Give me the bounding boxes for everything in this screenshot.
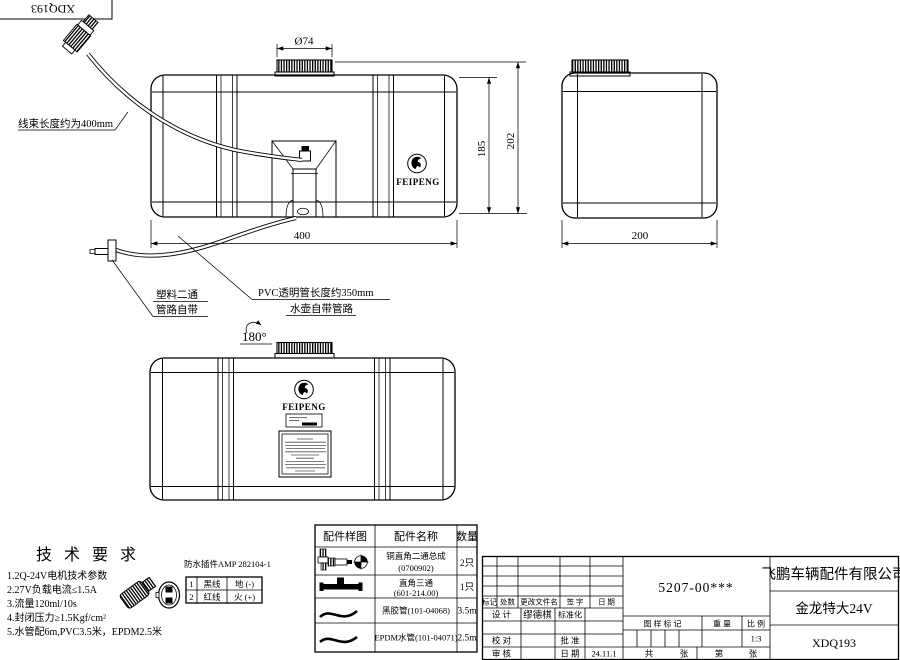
- approve-label: 批 准: [560, 636, 580, 646]
- dim-height-202: 202: [335, 62, 527, 214]
- rotated-band-left: [218, 359, 234, 500]
- pvc-hose-note: PVC透明管长度约350mm 水壶自带管路: [178, 236, 390, 316]
- tech-item-4: 4.封闭压力≥1.5Kgf/cm²: [7, 611, 106, 624]
- harness-note-text: 线束长度约为400mm: [18, 117, 113, 130]
- rotated-view: 180° FEIPENG: [150, 322, 455, 500]
- barcode-label: [286, 414, 322, 427]
- part-number: 5207-00***: [658, 580, 733, 595]
- plastic-note-line1: 塑料二通: [156, 288, 198, 301]
- feipeng-logo-front: FEIPENG: [396, 154, 440, 187]
- dim-height-total-text: 202: [505, 133, 517, 150]
- date-label: 日 期: [560, 649, 579, 659]
- weight-label: 重 量: [713, 619, 731, 629]
- bird-icon: [411, 157, 421, 169]
- drawing-sheet: XDQ193: [0, 0, 900, 660]
- tech-item-5: 5.水管配6m,PVC3.5米，EPDM2.5米: [7, 625, 162, 638]
- part2-name: 直角三通: [399, 578, 434, 588]
- part1-code: (0700902): [398, 563, 434, 573]
- dim-depth-200: 200: [562, 220, 717, 248]
- tech-requirements: 技 术 要 求 1.2Q-24V电机技术参数 2.27V负载电流≤1.5A 3.…: [7, 546, 271, 638]
- drawing-number: XDQ193: [812, 636, 856, 650]
- part-sample-elbow: [318, 549, 369, 570]
- dim-width-400: 400: [151, 220, 457, 248]
- part2-code: (601-214.00): [394, 588, 439, 598]
- pin1-wire: 黑线: [203, 579, 221, 589]
- stamp-label: 图 样 标 记: [644, 619, 682, 629]
- part1-name: 铜直角二通总成: [386, 551, 446, 561]
- dim-cap-text: Ø74: [295, 36, 314, 48]
- filler-cap-rotated: [275, 343, 334, 359]
- dim-height-185: 185: [459, 78, 497, 214]
- audit-label: 审 核: [492, 649, 512, 659]
- designer-name: 缪德棋: [523, 609, 552, 621]
- rotated-band-right: [375, 359, 391, 500]
- dim-height-inner-text: 185: [476, 140, 488, 157]
- pin2-signal: 火 (+): [234, 592, 255, 602]
- standard-label: 标准化: [558, 610, 582, 620]
- connector-drawing-side: [119, 575, 157, 609]
- part4-name: EPDM水管(101-04071): [374, 633, 457, 643]
- corner-code: XDQ193: [31, 2, 75, 16]
- instruction-sticker: [279, 431, 331, 477]
- corner-label-box: XDQ193: [0, 0, 112, 19]
- company-name: 飞鹏车辆配件有限公司: [762, 566, 900, 583]
- pin2-no: 2: [189, 592, 193, 602]
- pin2-wire: 红线: [203, 592, 221, 602]
- product-name: 金龙特大24V: [795, 601, 872, 616]
- dim-cap-diameter: Ø74: [277, 36, 332, 58]
- part1-qty: 2只: [460, 559, 474, 569]
- total-label: 共: [645, 649, 654, 659]
- rev-date-label: 日 期: [598, 598, 615, 607]
- pvc-note-line1: PVC透明管长度约350mm: [258, 286, 374, 299]
- check-label: 校 对: [492, 636, 512, 646]
- pump-recess: [272, 141, 336, 217]
- tech-title: 技 术 要 求: [36, 546, 140, 564]
- feipeng-wordmark-front: FEIPENG: [396, 177, 440, 187]
- scale-label: 比 例: [747, 619, 765, 629]
- pin1-signal: 地 (-): [235, 579, 254, 589]
- page-label: 第: [715, 649, 724, 659]
- plastic-note-line2: 管路自带: [156, 303, 198, 316]
- rev-count-label: 处数: [500, 597, 515, 607]
- parts-header-name: 配件名称: [394, 529, 438, 543]
- part2-qty: 1只: [460, 583, 474, 593]
- rev-sign-label: 签 字: [567, 597, 584, 607]
- connector-title: 防水插件AMP 282104-1: [184, 559, 271, 569]
- tech-item-2: 2.27V负载电流≤1.5A: [7, 583, 98, 596]
- pin1-no: 1: [189, 579, 193, 589]
- dim-depth-text: 200: [632, 230, 649, 242]
- part-sample-hose-black: [320, 611, 357, 617]
- rev-mark-label: 标记: [482, 597, 497, 607]
- rotate-note-text: 180°: [242, 329, 267, 344]
- feipeng-wordmark-rotated: FEIPENG: [282, 402, 326, 412]
- feipeng-logo-rotated: FEIPENG: [282, 380, 326, 412]
- dim-width-text: 400: [294, 230, 311, 242]
- tech-item-3: 3.流量120ml/10s: [7, 597, 77, 610]
- title-block: 飞鹏车辆配件有限公司 金龙特大24V XDQ193 5207-00*** 图 样…: [482, 557, 900, 660]
- harness-note: 线束长度约为400mm: [18, 112, 128, 130]
- sheet-label: 张: [680, 649, 689, 659]
- pin-table: 1 黑线 地 (-) 2 红线 火 (+): [186, 577, 262, 603]
- part4-qty: 2.5m: [457, 634, 477, 644]
- design-label: 设 计: [492, 610, 512, 620]
- part3-qty: 3.5m: [457, 607, 477, 617]
- electric-cable: [88, 54, 302, 160]
- cad-drawing: XDQ193: [0, 0, 900, 660]
- pvc-note-line2: 水壶自带管路: [290, 302, 353, 315]
- front-band-right: [373, 76, 394, 217]
- part-sample-hose-epdm: [320, 637, 357, 642]
- rev-file-label: 更改文件名: [520, 597, 558, 607]
- water-hose: [116, 218, 296, 256]
- date-value: 24.11.1: [591, 649, 616, 659]
- plastic-two-way-fitting: [90, 240, 116, 261]
- filler-cap-front: [275, 60, 334, 76]
- tech-item-1: 1.2Q-24V电机技术参数: [7, 569, 107, 582]
- bird-icon: [298, 383, 308, 395]
- sheet2-label: 张: [749, 649, 758, 659]
- part-sample-tee: [320, 578, 363, 592]
- parts-header-sample: 配件样图: [323, 529, 367, 543]
- part3-name: 黑胶管(101-04068): [382, 606, 450, 616]
- parts-table: 配件样图 配件名称 数量 铜直角二通总成 (0700902) 2只 直角三通: [315, 525, 478, 652]
- rotate-180-note: 180°: [240, 322, 272, 344]
- scale-value: 1:3: [751, 634, 762, 644]
- connector-drawing-face: [156, 582, 180, 608]
- parts-header-qty: 数量: [456, 530, 478, 543]
- plastic-fitting-note: 塑料二通 管路自带: [112, 260, 208, 317]
- side-view: 200: [562, 60, 717, 248]
